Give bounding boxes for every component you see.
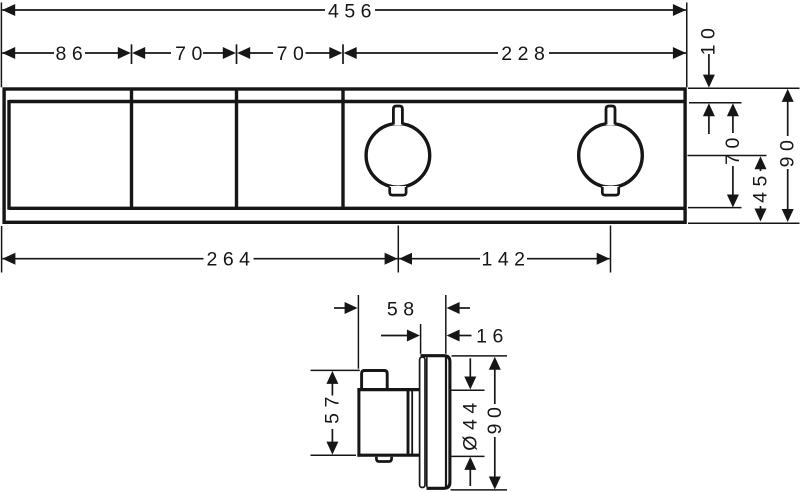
- svg-text:58: 58: [387, 299, 420, 321]
- svg-text:228: 228: [501, 43, 550, 65]
- svg-text:70: 70: [722, 132, 744, 165]
- svg-text:70: 70: [277, 43, 310, 65]
- svg-text:10: 10: [698, 23, 720, 56]
- svg-text:57: 57: [321, 391, 343, 424]
- svg-text:142: 142: [481, 249, 530, 271]
- svg-text:Ø44: Ø44: [460, 397, 482, 450]
- svg-text:456: 456: [328, 1, 377, 23]
- svg-text:70: 70: [175, 43, 208, 65]
- svg-text:16: 16: [476, 326, 509, 348]
- svg-text:90: 90: [484, 402, 506, 435]
- svg-text:90: 90: [777, 135, 799, 168]
- svg-text:45: 45: [750, 170, 772, 203]
- svg-text:264: 264: [206, 249, 255, 271]
- svg-text:86: 86: [56, 43, 89, 65]
